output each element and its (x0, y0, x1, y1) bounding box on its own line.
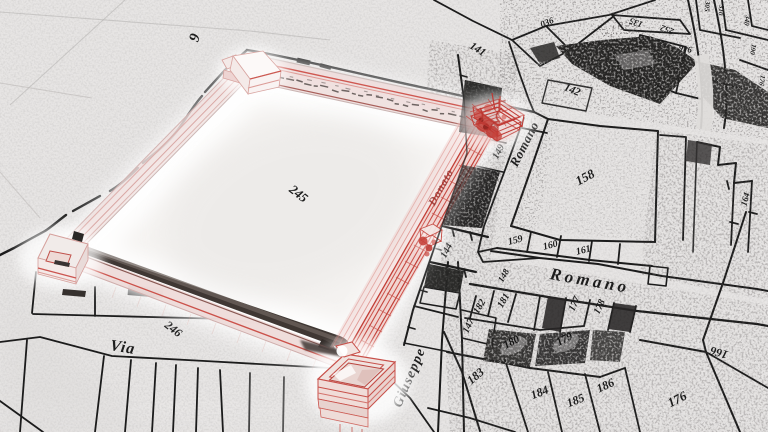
svg-text:310: 310 (717, 4, 726, 17)
svg-text:305: 305 (703, 0, 712, 12)
